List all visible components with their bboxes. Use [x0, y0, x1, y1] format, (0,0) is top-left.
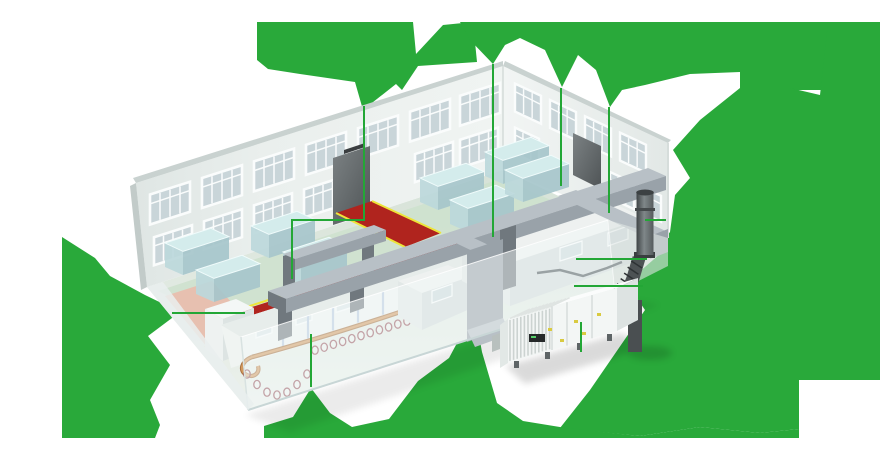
factory-ventilation-illustration	[0, 0, 880, 465]
stack-body	[637, 193, 654, 255]
ahu-inlet-stub	[492, 333, 500, 352]
ahu-left-cap	[500, 319, 508, 368]
stack-cap	[636, 190, 654, 196]
stack-flange	[635, 208, 655, 211]
illustration-canvas	[0, 0, 880, 465]
building-cutaway	[130, 61, 672, 432]
